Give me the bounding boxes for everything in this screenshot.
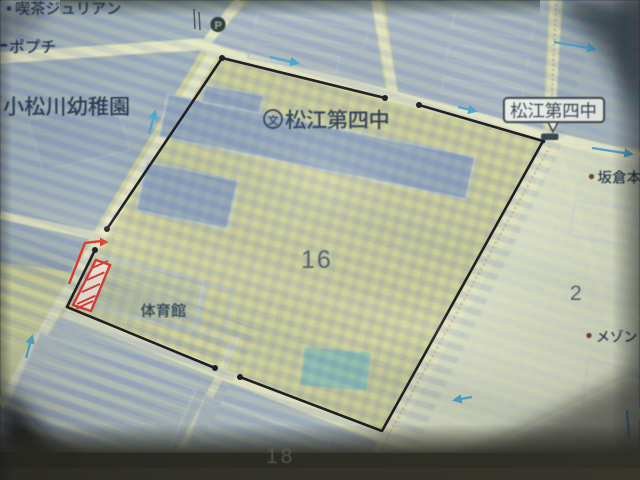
svg-text:18: 18 [266,445,295,468]
